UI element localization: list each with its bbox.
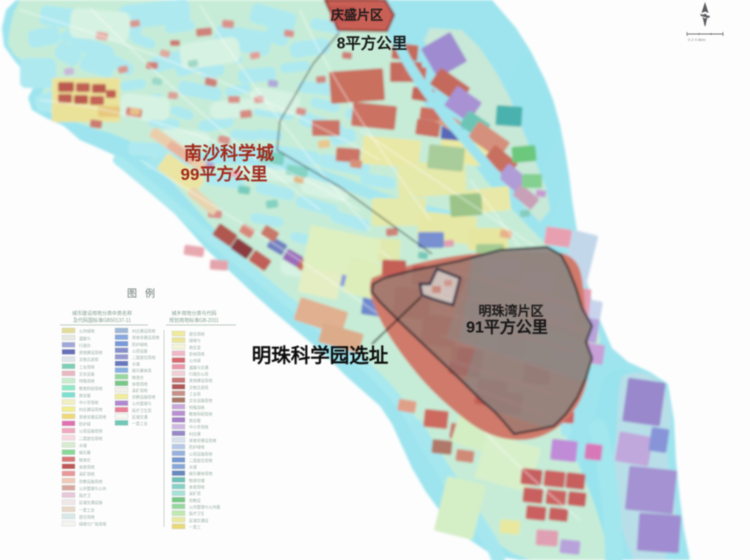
svg-text:体育用地: 体育用地	[189, 485, 205, 490]
svg-text:医疗卫生: 医疗卫生	[189, 511, 205, 516]
svg-text:教育科研用地: 教育科研用地	[79, 386, 102, 391]
svg-text:防护绿: 防护绿	[79, 422, 91, 427]
svg-text:采矿用: 采矿用	[189, 491, 201, 496]
svg-text:其他非建设用地: 其他非建设用地	[189, 438, 216, 443]
svg-text:一类工业: 一类工业	[132, 421, 148, 426]
svg-text:其他建设用地: 其他建设用地	[189, 378, 212, 383]
svg-text:医疗卫生用: 医疗卫生用	[132, 408, 152, 413]
svg-text:教育科研用地: 教育科研用地	[189, 411, 212, 416]
svg-text:二类居住用地: 二类居住用地	[132, 355, 155, 360]
svg-text:体育用地: 体育用地	[132, 381, 148, 386]
svg-text:公用设施用地: 公用设施用地	[189, 451, 212, 456]
svg-text:中小学用地: 中小学用地	[79, 400, 99, 405]
svg-text:行政办公用: 行政办公用	[189, 372, 209, 377]
svg-text:绿地与: 绿地与	[189, 338, 201, 343]
svg-text:规划用地标准GB-2011: 规划用地标准GB-2011	[169, 317, 219, 324]
svg-text:明珠科学园选址: 明珠科学园选址	[252, 344, 389, 367]
svg-text:防护绿地: 防护绿地	[132, 342, 148, 347]
svg-text:医疗卫: 医疗卫	[79, 493, 91, 498]
svg-text:水域: 水域	[132, 362, 140, 367]
svg-text:行政办: 行政办	[79, 343, 91, 348]
svg-text:公共绿: 公共绿	[189, 358, 201, 363]
svg-text:庆盛片区: 庆盛片区	[330, 8, 383, 23]
svg-text:91平方公里: 91平方公里	[466, 318, 548, 337]
svg-text:水域: 水域	[79, 443, 87, 448]
svg-text:采矿用地: 采矿用地	[132, 388, 148, 393]
svg-text:物流仓储: 物流仓储	[189, 478, 205, 483]
svg-text:其他建设用地: 其他建设用地	[79, 350, 102, 355]
svg-text:特殊用地: 特殊用地	[79, 379, 95, 384]
svg-text:中小学用地: 中小学用地	[189, 425, 209, 430]
svg-text:图例: 图例	[127, 287, 163, 300]
svg-text:娱乐康体用: 娱乐康体用	[132, 368, 152, 373]
svg-text:防护绿地: 防护绿地	[189, 445, 205, 450]
svg-text:物流仓: 物流仓	[79, 457, 91, 462]
svg-text:公共管理与公共: 公共管理与公共	[79, 486, 106, 491]
svg-text:娱乐康: 娱乐康	[79, 450, 91, 455]
svg-text:8平方公里: 8平方公里	[337, 34, 408, 53]
svg-text:99平方公里: 99平方公里	[181, 164, 268, 184]
svg-text:村庄建设用地: 村庄建设用地	[132, 329, 155, 334]
svg-text:0 2 4 8km: 0 2 4 8km	[688, 37, 706, 42]
svg-text:明珠湾片区: 明珠湾片区	[478, 304, 543, 319]
svg-text:娱乐康体用地: 娱乐康体用地	[189, 471, 212, 476]
svg-text:村庄建: 村庄建	[189, 431, 201, 436]
svg-text:宗教设: 宗教设	[189, 498, 201, 503]
svg-text:公共管理与: 公共管理与	[132, 401, 152, 406]
svg-text:商业服: 商业服	[79, 393, 91, 398]
svg-text:文化设施用地: 文化设施用地	[189, 398, 212, 403]
svg-text:区域交通设: 区域交通设	[189, 518, 209, 523]
svg-text:商住混: 商住混	[189, 345, 201, 350]
svg-text:及代码国标准GB50137-11: 及代码国标准GB50137-11	[73, 317, 131, 324]
svg-text:村庄建设用地: 村庄建设用地	[79, 407, 102, 412]
svg-text:二类居住用地: 二类居住用地	[189, 458, 212, 463]
svg-text:二类居住用地: 二类居住用地	[79, 436, 102, 441]
svg-text:其他非建设用地: 其他非建设用地	[132, 335, 159, 340]
svg-text:商业服: 商业服	[189, 418, 201, 423]
svg-text:文化设施: 文化设施	[79, 372, 95, 377]
svg-text:采矿用地: 采矿用地	[79, 472, 95, 477]
svg-text:道路与交通: 道路与交通	[189, 365, 209, 370]
svg-text:水域: 水域	[189, 465, 197, 470]
svg-text:南沙科学城: 南沙科学城	[184, 143, 274, 164]
svg-text:公共管理与公共服: 公共管理与公共服	[189, 505, 220, 510]
svg-text:绿地与广场用地: 绿地与广场用地	[79, 522, 106, 527]
svg-text:物流仓: 物流仓	[132, 375, 144, 380]
svg-text:农林用地: 农林用地	[189, 352, 205, 357]
svg-text:居住用地: 居住用地	[79, 515, 95, 520]
svg-text:城市建设用地分类中类名称: 城市建设用地分类中类名称	[72, 310, 132, 317]
svg-text:工业用地: 工业用地	[79, 364, 95, 369]
svg-text:区域交通: 区域交通	[132, 414, 148, 419]
svg-text:体育用地: 体育用地	[79, 465, 95, 470]
svg-text:其他非建设用地: 其他非建设用地	[79, 414, 106, 419]
svg-text:一类工: 一类工	[189, 525, 201, 530]
svg-text:公用设施用地: 公用设施用地	[79, 429, 102, 434]
svg-text:居住用地: 居住用地	[189, 332, 205, 337]
svg-text:一类工业: 一类工业	[79, 507, 95, 512]
svg-text:宗教设施用地: 宗教设施用地	[132, 395, 155, 400]
svg-text:文物古迹用: 文物古迹用	[79, 357, 99, 362]
svg-text:道路与: 道路与	[79, 336, 91, 341]
svg-text:文物古迹用: 文物古迹用	[189, 385, 209, 390]
svg-text:公用设施: 公用设施	[132, 348, 148, 353]
svg-text:宗教设施用地: 宗教设施用地	[79, 479, 102, 484]
svg-text:区域交通设施: 区域交通设施	[79, 500, 102, 505]
svg-text:工业用: 工业用	[189, 392, 201, 397]
svg-text:特殊用地: 特殊用地	[189, 405, 205, 410]
svg-text:城乡用地分类与代码: 城乡用地分类与代码	[171, 310, 216, 317]
svg-text:公共绿地: 公共绿地	[79, 329, 95, 334]
